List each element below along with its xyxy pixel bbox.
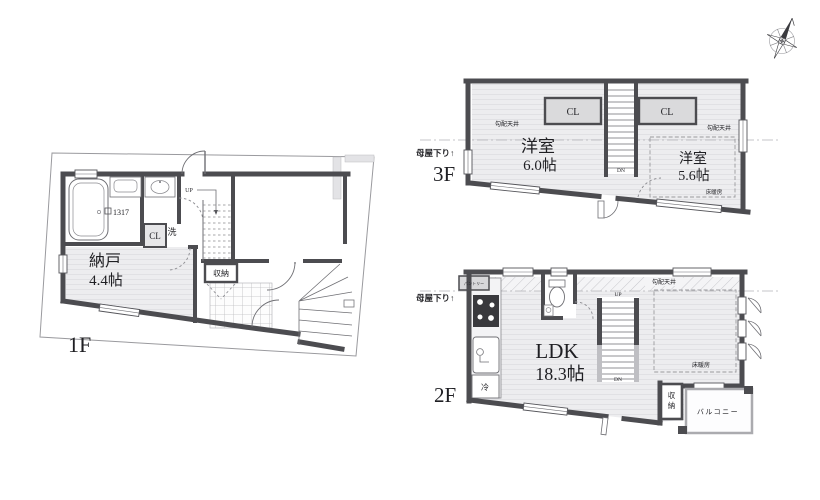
floor-plan-3f: 母屋下り↑ DN CL CL 勾配天井 <box>416 81 778 218</box>
fridge-label: 冷 <box>481 382 489 392</box>
room-right-area-label: 5.6帖 <box>678 168 710 184</box>
sloped-ceiling-hatch <box>495 277 742 291</box>
sink-icon <box>473 337 499 373</box>
storage-label-2f: 納 <box>668 400 676 410</box>
closet-label: CL <box>149 231 161 241</box>
kitchen-counter <box>471 278 501 398</box>
compass-rose-icon <box>760 12 807 65</box>
stove-icon <box>473 295 499 327</box>
stair-up-label: UP <box>185 188 193 194</box>
stair-down-label-3f: DN <box>617 168 625 174</box>
exterior-ledge <box>345 155 374 162</box>
dormer-note-2f: 母屋下り↑ <box>416 293 454 303</box>
room-left-area-label: 6.0帖 <box>523 157 557 174</box>
bath-size-label: 1317 <box>113 208 129 217</box>
toilet-icon <box>549 280 565 307</box>
sloped-ceiling-right-label: 勾配天井 <box>707 124 731 132</box>
f3-center-door <box>598 201 618 218</box>
stair-down-label-2f: DN <box>614 377 622 383</box>
f2-bottom-door <box>601 417 608 434</box>
dormer-note-3f: 母屋下り↑ <box>416 148 454 158</box>
floor-label-1f: 1F <box>68 332 91 357</box>
room-area-label: 4.4帖 <box>89 272 123 289</box>
floor-label-2f: 2F <box>434 383 456 407</box>
exterior-ledge <box>333 157 341 199</box>
storage-box-2f: 収 納 <box>661 384 682 419</box>
sloped-ceiling-left-label: 勾配天井 <box>495 120 519 128</box>
closet-right-label: CL <box>661 107 674 118</box>
room-right-name-label: 洋室 <box>679 150 707 167</box>
room-name-label: 納戸 <box>89 252 121 270</box>
room-area-label-2f: 18.3帖 <box>535 364 585 384</box>
staircase-3f: DN <box>606 84 636 175</box>
room-left-name-label: 洋室 <box>521 137 555 156</box>
sloped-ceiling-label-2f: 勾配天井 <box>652 278 676 286</box>
closet-left-label: CL <box>567 107 580 118</box>
floor-heating-label-2f: 床暖房 <box>692 361 710 369</box>
balcony: バルコニー <box>678 386 753 434</box>
storage-label-2f: 収 <box>668 391 676 400</box>
balcony-label: バルコニー <box>697 408 739 416</box>
bath-counter-icon <box>110 177 141 197</box>
casement-windows <box>738 297 761 360</box>
floorplan-drawing: 1317 CL 洗 UP 収納 納戸 4.4帖 1F 母屋下り↑ DN CL C… <box>0 0 820 500</box>
stair-up-label-2f: UP <box>614 292 621 298</box>
floor-plan-2f: 母屋下り↑ <box>416 268 778 435</box>
floorplan-canvas: 1317 CL 洗 UP 収納 納戸 4.4帖 1F 母屋下り↑ DN CL C… <box>0 0 820 500</box>
pantry-label: パントリー <box>464 281 484 286</box>
storage-label: 収納 <box>213 268 229 278</box>
door-swing-dashed <box>179 198 203 222</box>
meter-box <box>344 300 354 307</box>
staircase-2f: UP DN <box>597 292 639 383</box>
floor-heating-label-3f: 床暖房 <box>706 188 723 196</box>
room-name-label-2f: LDK <box>535 339 578 363</box>
corner-basin-icon <box>544 305 553 316</box>
floor-label-3f: 3F <box>433 162 455 186</box>
bathtub-icon <box>69 179 108 240</box>
staircase-1f <box>197 190 233 261</box>
washbasin-icon <box>145 177 175 197</box>
floor-plan-1f: 1317 CL 洗 UP 収納 納戸 4.4帖 1F <box>40 151 374 357</box>
laundry-label: 洗 <box>167 226 176 237</box>
